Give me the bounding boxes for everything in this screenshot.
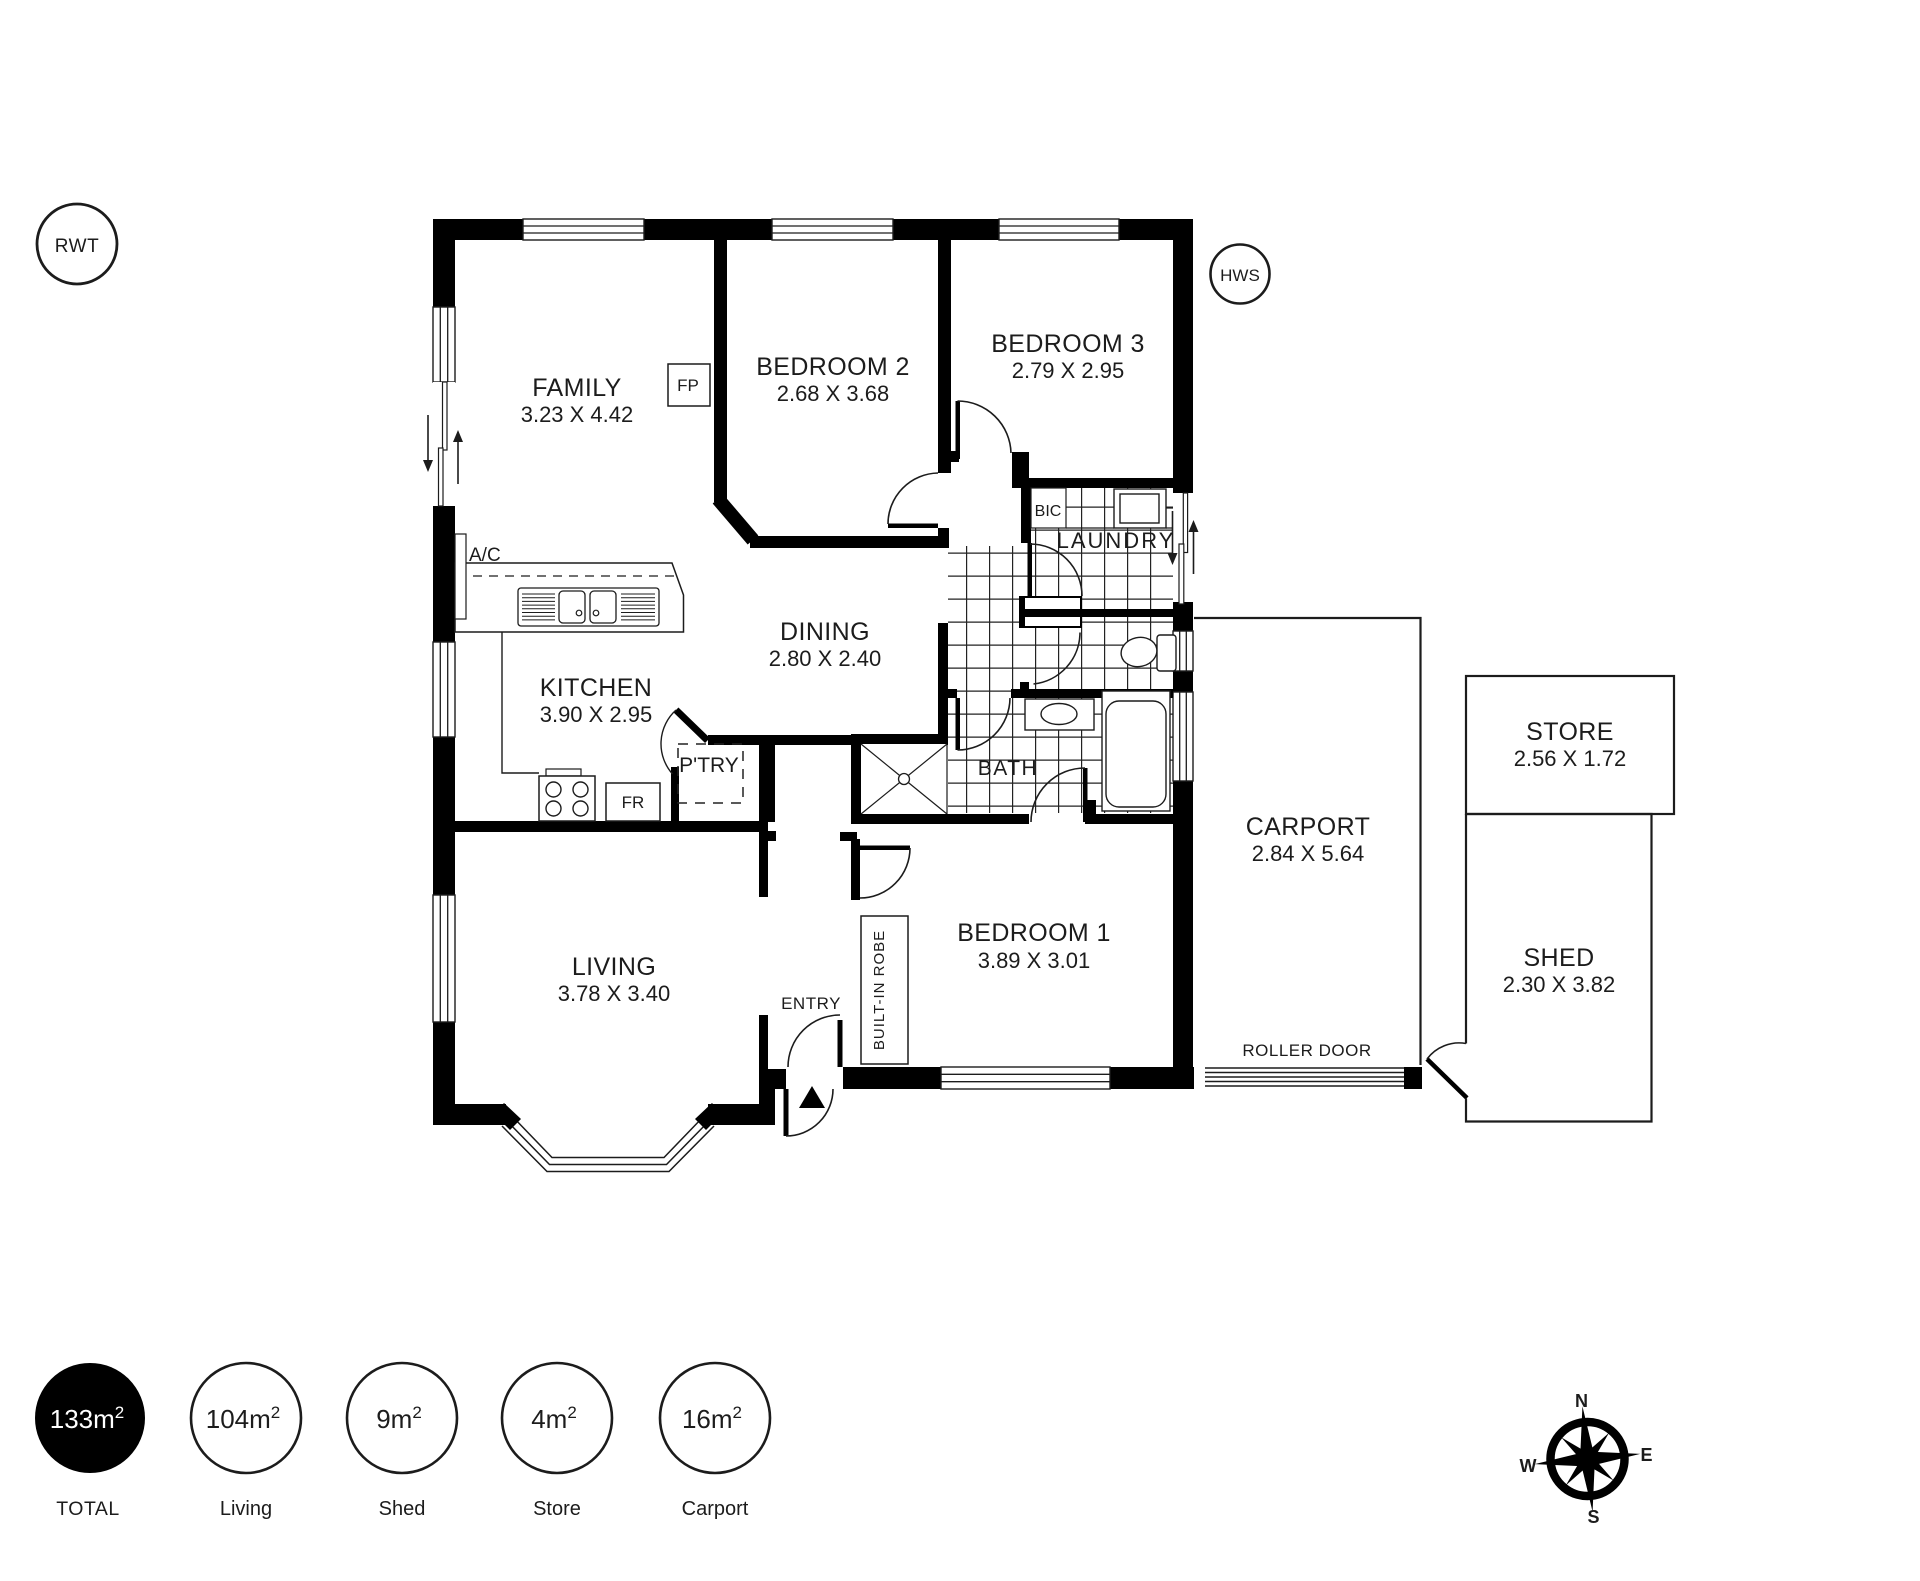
svg-text:Living: Living (220, 1498, 272, 1520)
svg-text:DINING: DINING (780, 618, 870, 646)
svg-text:FR: FR (622, 793, 645, 812)
svg-text:ENTRY: ENTRY (781, 994, 841, 1013)
svg-text:P'TRY: P'TRY (679, 754, 739, 777)
svg-text:2.68 X 3.68: 2.68 X 3.68 (777, 381, 890, 406)
svg-text:KITCHEN: KITCHEN (540, 674, 653, 702)
svg-text:Carport: Carport (682, 1498, 749, 1520)
svg-text:FP: FP (677, 376, 699, 395)
svg-text:2.30 X 3.82: 2.30 X 3.82 (1503, 972, 1616, 997)
svg-text:BEDROOM 3: BEDROOM 3 (991, 330, 1145, 358)
svg-text:SHED: SHED (1523, 944, 1594, 972)
svg-text:3.78 X 3.40: 3.78 X 3.40 (558, 981, 671, 1006)
svg-text:ROLLER DOOR: ROLLER DOOR (1242, 1041, 1371, 1060)
svg-text:CARPORT: CARPORT (1246, 813, 1371, 841)
svg-text:104m2: 104m2 (206, 1403, 281, 1434)
svg-text:LIVING: LIVING (572, 953, 656, 981)
svg-text:Store: Store (533, 1498, 581, 1520)
svg-text:E: E (1640, 1445, 1652, 1465)
svg-text:HWS: HWS (1220, 266, 1260, 285)
svg-text:A/C: A/C (469, 545, 501, 566)
svg-text:2.80 X 2.40: 2.80 X 2.40 (769, 646, 882, 671)
svg-text:S: S (1587, 1507, 1599, 1527)
svg-text:3.90 X 2.95: 3.90 X 2.95 (540, 702, 653, 727)
svg-text:STORE: STORE (1526, 718, 1614, 746)
svg-text:BEDROOM 1: BEDROOM 1 (957, 919, 1111, 947)
svg-text:N: N (1575, 1391, 1588, 1411)
svg-text:2.56 X 1.72: 2.56 X 1.72 (1514, 746, 1627, 771)
svg-text:2.84 X 5.64: 2.84 X 5.64 (1252, 841, 1365, 866)
svg-text:RWT: RWT (55, 236, 99, 257)
svg-text:W: W (1520, 1456, 1537, 1476)
svg-text:FAMILY: FAMILY (532, 374, 621, 402)
svg-text:BATH: BATH (978, 757, 1038, 780)
svg-text:BEDROOM 2: BEDROOM 2 (756, 353, 910, 381)
svg-text:3.23 X 4.42: 3.23 X 4.42 (521, 402, 634, 427)
svg-text:Shed: Shed (379, 1498, 426, 1520)
svg-text:133m2: 133m2 (50, 1403, 125, 1434)
svg-text:BUILT-IN ROBE: BUILT-IN ROBE (871, 930, 888, 1050)
svg-text:TOTAL: TOTAL (56, 1498, 120, 1520)
svg-text:3.89 X 3.01: 3.89 X 3.01 (978, 948, 1091, 973)
svg-text:LAUNDRY: LAUNDRY (1057, 528, 1176, 553)
svg-text:BIC: BIC (1035, 503, 1062, 520)
svg-text:2.79 X 2.95: 2.79 X 2.95 (1012, 358, 1125, 383)
